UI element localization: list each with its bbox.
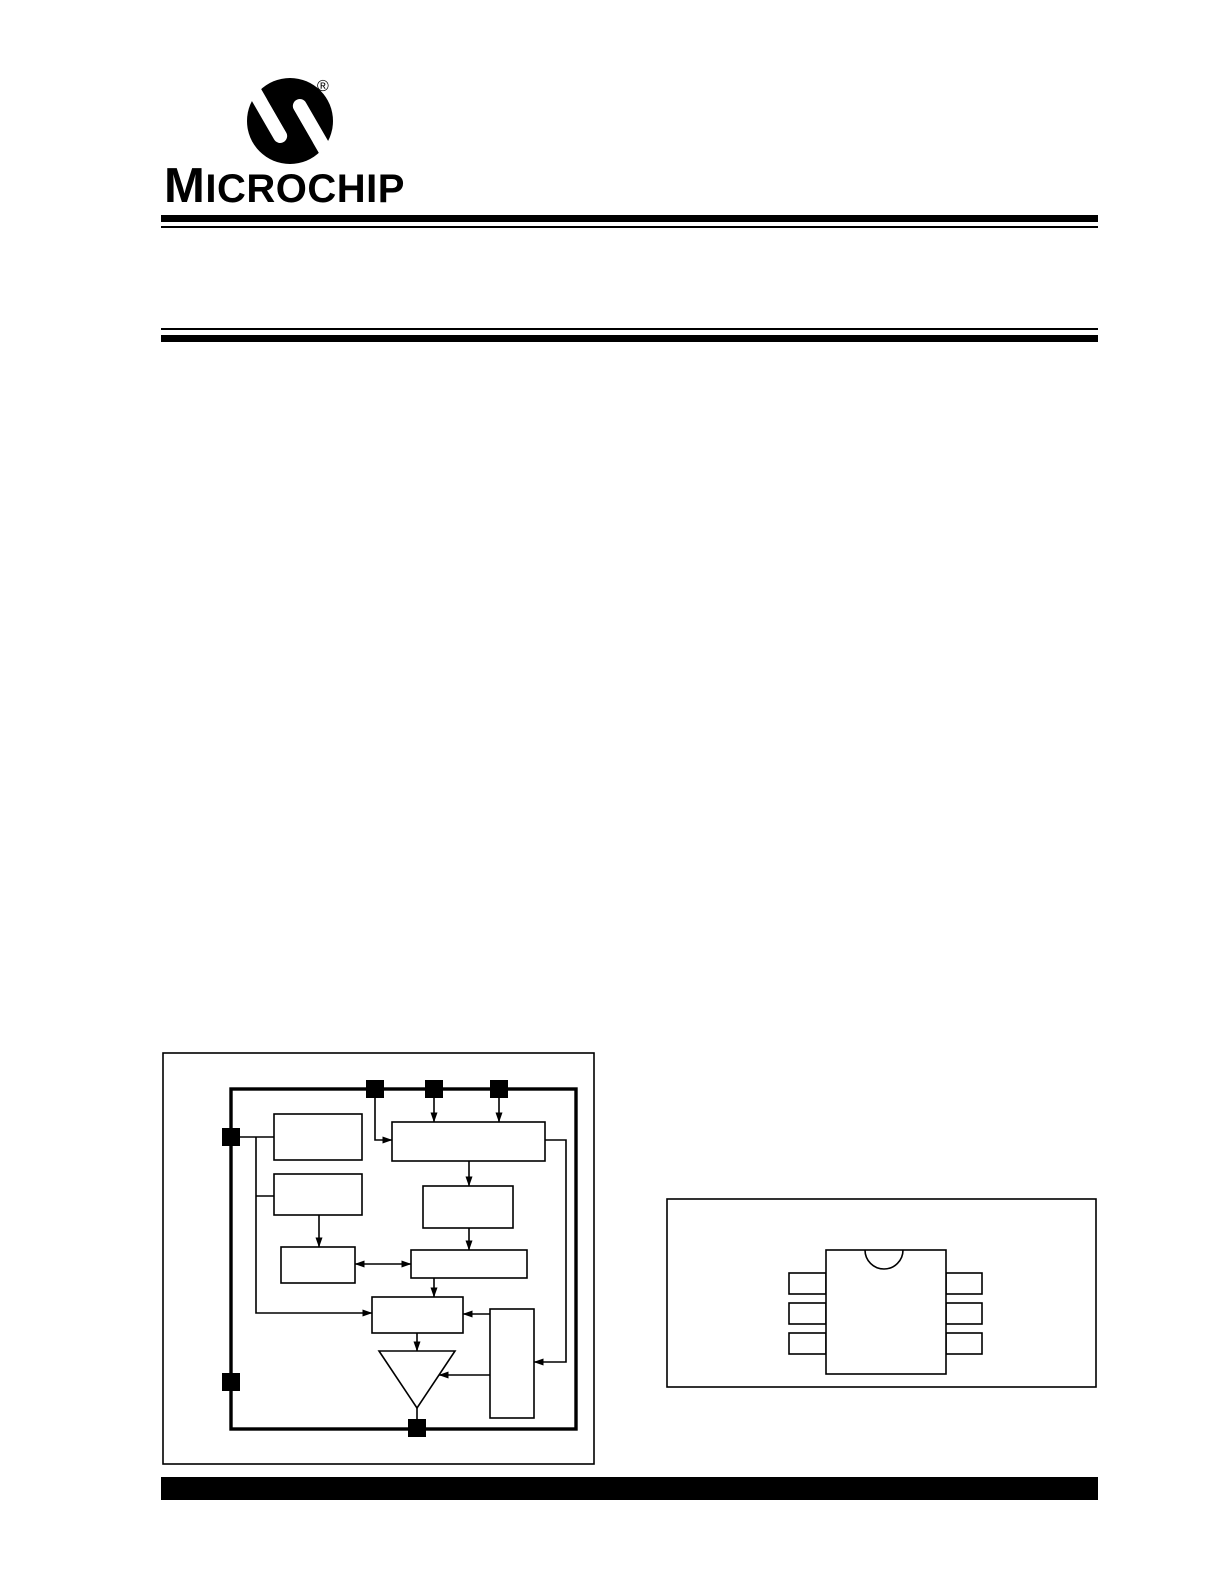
package-lead-left-1: [789, 1273, 826, 1294]
package-lead-right-2: [946, 1303, 982, 1324]
pin-pad-top-3: [490, 1080, 508, 1098]
package-lead-left-3: [789, 1333, 826, 1354]
package-outline-svg: [665, 1197, 1098, 1389]
block-center-lower: [372, 1297, 463, 1333]
pin-pad-top-2: [425, 1080, 443, 1098]
block-top-left: [274, 1114, 362, 1160]
brand-wordmark: MICROCHIP: [164, 159, 405, 210]
pin-pad-left-2: [222, 1373, 240, 1391]
header-rule-thin: [161, 226, 1098, 229]
connector-line: [534, 1140, 566, 1362]
block-wide-top: [392, 1122, 545, 1161]
pin-pad-top-1: [366, 1080, 384, 1098]
header-rule-thick: [161, 215, 1098, 222]
block-mid-right: [423, 1186, 513, 1228]
block-tall-right: [490, 1309, 534, 1418]
title-rule-thin: [161, 328, 1098, 331]
connector-line: [256, 1137, 372, 1313]
microchip-logo: ® MICROCHIP: [160, 70, 420, 210]
block-small-left: [281, 1247, 355, 1283]
footer-bar: [161, 1477, 1098, 1500]
connector-line: [375, 1098, 392, 1140]
block-wide-middle: [411, 1250, 527, 1278]
title-rule-thick: [161, 335, 1098, 342]
pin-pad-left-1: [222, 1128, 240, 1146]
package-lead-right-1: [946, 1273, 982, 1294]
package-lead-left-2: [789, 1303, 826, 1324]
registered-mark: ®: [317, 78, 329, 95]
triangle-buffer: [379, 1351, 455, 1408]
block-diagram-svg: [161, 1051, 596, 1466]
pin-pad-bottom: [408, 1419, 426, 1437]
datasheet-page: ® MICROCHIP: [0, 0, 1224, 1584]
block-mid-left: [274, 1174, 362, 1215]
package-lead-right-3: [946, 1333, 982, 1354]
